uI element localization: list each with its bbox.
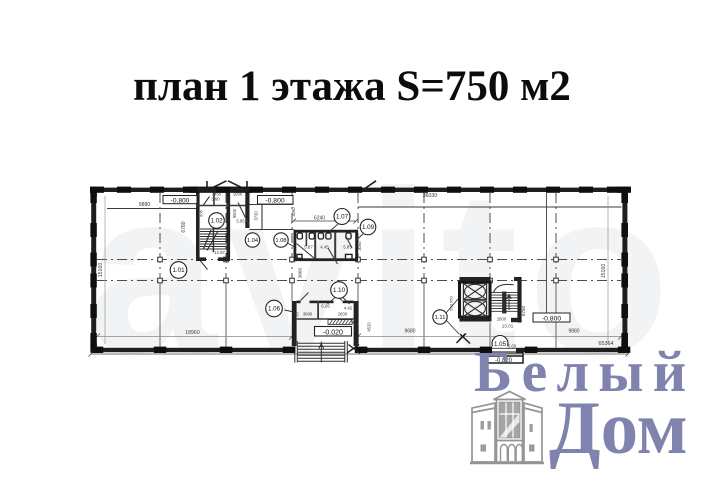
svg-text:4520: 4520 — [367, 322, 372, 332]
svg-text:9500: 9500 — [232, 208, 237, 218]
svg-text:3730: 3730 — [254, 211, 259, 221]
svg-text:1.10: 1.10 — [333, 287, 346, 294]
svg-text:3090: 3090 — [357, 241, 362, 251]
svg-text:-0.800: -0.800 — [542, 316, 561, 323]
svg-text:5.95: 5.95 — [236, 219, 245, 224]
svg-text:4.45: 4.45 — [320, 244, 329, 249]
svg-text:2600: 2600 — [338, 312, 348, 317]
svg-text:1.09: 1.09 — [362, 224, 375, 231]
svg-text:план 1 этажа S=750 м2: план 1 этажа S=750 м2 — [133, 63, 571, 110]
svg-text:950 950: 950 950 — [449, 296, 454, 311]
svg-text:-0.020: -0.020 — [323, 329, 343, 336]
svg-text:2450: 2450 — [212, 191, 222, 196]
svg-text:2600: 2600 — [497, 317, 507, 322]
svg-text:5.85: 5.85 — [343, 244, 352, 249]
svg-text:5.87: 5.87 — [304, 244, 313, 249]
svg-text:15160: 15160 — [98, 263, 104, 278]
svg-text:1.04: 1.04 — [247, 238, 259, 244]
svg-text:1.01: 1.01 — [172, 267, 185, 274]
svg-text:1.08: 1.08 — [275, 238, 286, 244]
svg-text:505: 505 — [199, 209, 204, 216]
svg-text:6240: 6240 — [314, 215, 325, 221]
svg-text:1.02: 1.02 — [210, 218, 223, 225]
svg-text:9880: 9880 — [139, 202, 151, 208]
svg-text:3090: 3090 — [291, 207, 296, 217]
svg-text:9680: 9680 — [404, 328, 415, 334]
svg-text:Дом: Дом — [549, 387, 688, 470]
svg-text:185.0: 185.0 — [226, 241, 231, 252]
svg-text:3860: 3860 — [298, 267, 303, 278]
svg-text:3.60: 3.60 — [211, 197, 220, 202]
svg-text:-0.800: -0.800 — [265, 198, 284, 205]
svg-text:6780: 6780 — [521, 305, 526, 316]
svg-text:-0.800: -0.800 — [171, 197, 190, 204]
svg-text:6.26: 6.26 — [321, 304, 330, 309]
svg-text:1000: 1000 — [233, 191, 243, 196]
svg-text:12.97: 12.97 — [214, 250, 226, 255]
svg-text:4.42: 4.42 — [344, 306, 353, 311]
svg-text:20: 20 — [295, 312, 300, 317]
svg-text:15160: 15160 — [601, 264, 607, 279]
svg-text:1.11: 1.11 — [435, 315, 446, 321]
svg-text:9880: 9880 — [568, 328, 579, 334]
svg-text:18960: 18960 — [185, 330, 200, 336]
svg-text:13.01: 13.01 — [502, 324, 514, 329]
svg-text:3680: 3680 — [303, 312, 313, 317]
svg-text:6780: 6780 — [181, 221, 187, 232]
svg-text:36030: 36030 — [423, 193, 438, 199]
svg-text:1.06: 1.06 — [268, 306, 281, 313]
svg-text:1.07: 1.07 — [336, 214, 349, 221]
